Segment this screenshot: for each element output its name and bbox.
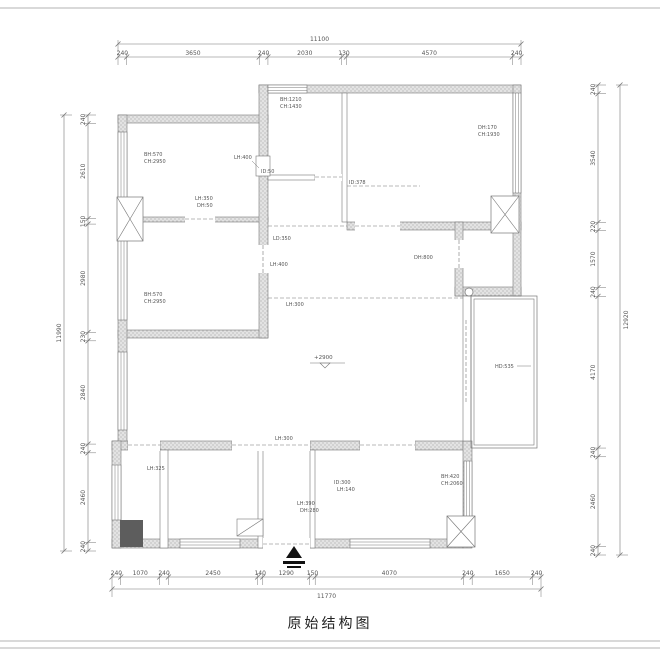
dim-value: 4570	[422, 50, 437, 57]
dim-chain-top: 24036502402030130457024011100	[116, 36, 524, 65]
window-symbol	[513, 93, 521, 193]
dim-annotation: CH:2950	[144, 299, 166, 305]
dim-value: 3650	[185, 50, 200, 57]
annotation-layer: BH:570CH:2950LH:400LH:350DH:50BH:1210CH:…	[144, 97, 514, 514]
window-symbol	[112, 465, 121, 520]
dim-value: 2030	[297, 50, 312, 57]
dim-value: 240	[531, 570, 543, 577]
dim-value: 4070	[382, 570, 397, 577]
terrace-parapet-inner	[474, 299, 534, 445]
dim-value: 240	[111, 570, 123, 577]
dim-value: 240	[462, 570, 474, 577]
window-symbol	[118, 352, 127, 430]
entry-arrow-icon	[283, 546, 305, 568]
dim-total-value: 11770	[317, 593, 336, 600]
dim-value: 240	[590, 83, 597, 95]
dim-annotation: LH:140	[337, 487, 355, 493]
dim-value: 2460	[590, 494, 597, 509]
dim-annotation: CH:2950	[144, 159, 166, 165]
flue-solid-block	[120, 520, 143, 547]
dim-annotation: LH:300	[286, 302, 304, 308]
wall-hatched	[118, 115, 268, 123]
dim-total-value: 12920	[623, 310, 630, 329]
wall-thin	[160, 450, 168, 548]
step-symbol	[237, 519, 263, 536]
dim-value: 240	[80, 443, 87, 455]
dim-annotation: LD:350	[273, 236, 291, 242]
door-opening	[258, 245, 269, 273]
dim-value: 1570	[590, 251, 597, 266]
dim-value: 240	[258, 50, 270, 57]
dim-value: 150	[307, 570, 319, 577]
dim-value: 240	[590, 447, 597, 459]
door-opening	[315, 174, 342, 181]
wall-hatched	[310, 441, 360, 450]
level-mark-triangle	[320, 363, 330, 368]
dim-chain-right: 240354022015702404170240246024012920	[590, 83, 630, 558]
dim-annotation: CH:2060	[441, 481, 463, 487]
dim-annotation: LH:300	[275, 436, 293, 442]
wall-layer	[112, 85, 521, 549]
dim-value: 240	[158, 570, 170, 577]
level-mark: +2900	[310, 355, 345, 368]
wall-thin	[463, 296, 471, 441]
dim-annotation: DH:280	[300, 508, 319, 514]
dim-value: 140	[254, 570, 266, 577]
window-symbol	[118, 240, 127, 320]
dim-annotation: LH:400	[234, 155, 252, 161]
dim-value: 220	[590, 221, 597, 233]
dim-annotation: LH:350	[195, 196, 213, 202]
dim-annotation: BH:420	[441, 474, 459, 480]
level-mark-value: +2900	[314, 355, 333, 361]
dim-value: 130	[338, 50, 350, 57]
column-circle	[465, 288, 473, 296]
dim-value: 2980	[80, 270, 87, 285]
window-frame	[118, 132, 127, 202]
dim-annotation: LH:325	[147, 466, 165, 472]
dim-value: 240	[80, 113, 87, 125]
dim-annotation: ID:50	[261, 169, 274, 175]
window-frame	[180, 539, 240, 548]
dim-value: 240	[117, 50, 129, 57]
dim-chain-bottom: 2401070240245014012901504070240165024011…	[110, 570, 544, 600]
sheet-border-lines	[0, 8, 660, 648]
door-opening	[128, 440, 160, 451]
shaft-x-box	[447, 516, 475, 547]
window-frame	[513, 93, 521, 193]
dim-annotation: BH:570	[144, 292, 162, 298]
dim-value: 240	[590, 545, 597, 557]
wall-hatched	[118, 330, 268, 338]
dim-annotation: DH:50	[197, 203, 213, 209]
terrace-parapet-outer	[471, 296, 537, 448]
wall-thin	[268, 175, 315, 180]
dim-annotation: CH:1430	[280, 104, 302, 110]
dim-annotation: BH:1210	[280, 97, 302, 103]
dim-value: 2840	[80, 385, 87, 400]
dim-total-value: 11100	[310, 36, 329, 43]
window-symbol	[464, 461, 472, 523]
dim-annotation: DH:800	[414, 255, 433, 261]
window-frame	[118, 352, 127, 430]
wall-hatched	[415, 441, 463, 450]
dim-annotation: LH:400	[270, 262, 288, 268]
window-symbol	[118, 132, 127, 202]
dim-value: 240	[80, 541, 87, 553]
door-opening	[185, 216, 215, 223]
wall-hatched	[160, 441, 232, 450]
drawing-title: 原始结构图	[0, 613, 660, 633]
window-frame	[112, 465, 121, 520]
wall-thin	[342, 93, 347, 222]
drawing-sheet: { "sheet": { "title": "原始结构图" }, "dimens…	[0, 0, 660, 660]
door-opening	[232, 440, 310, 451]
dim-annotation: HD:535	[495, 364, 514, 370]
shaft-x-box	[117, 197, 143, 241]
dim-annotation: ID:300	[334, 480, 351, 486]
dim-value: 2610	[80, 163, 87, 178]
window-symbol	[268, 85, 307, 93]
door-opening	[263, 538, 310, 549]
wall-hatched	[259, 85, 268, 338]
window-frame	[464, 461, 472, 523]
dim-annotation: DH:170	[478, 125, 497, 131]
dim-value: 1290	[279, 570, 294, 577]
dim-value: 2450	[205, 570, 220, 577]
dim-value: 150	[80, 215, 87, 227]
shaft-x-box	[491, 196, 519, 233]
dim-annotation: BH:570	[144, 152, 162, 158]
floor-plan-drawing: 2403650240203013045702401110024010702402…	[0, 0, 660, 660]
dim-annotation: ID:378	[349, 180, 366, 186]
window-frame	[268, 85, 307, 93]
wall-thin	[310, 450, 315, 548]
window-symbol	[350, 539, 430, 548]
window-frame	[118, 240, 127, 320]
detail-layer	[112, 85, 537, 548]
dim-value: 1070	[133, 570, 148, 577]
dim-total-value: 11990	[56, 323, 63, 342]
dim-value: 240	[590, 286, 597, 298]
window-frame	[350, 539, 430, 548]
dim-value: 3540	[590, 150, 597, 165]
dim-value: 4170	[590, 364, 597, 379]
door-opening	[360, 440, 415, 451]
dim-value: 1650	[495, 570, 510, 577]
dim-chain-left: 240261015029802302840240246024011990	[56, 113, 96, 554]
window-symbol	[180, 539, 240, 548]
dim-annotation: LH:390	[297, 501, 315, 507]
dim-value: 230	[80, 331, 87, 343]
dim-annotation: CH:1930	[478, 132, 500, 138]
dim-value: 2460	[80, 490, 87, 505]
